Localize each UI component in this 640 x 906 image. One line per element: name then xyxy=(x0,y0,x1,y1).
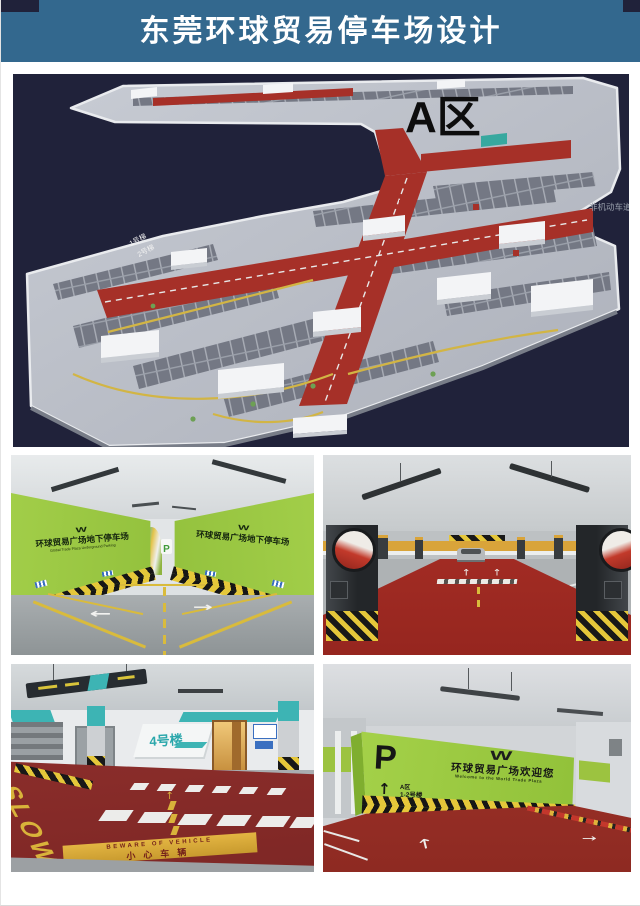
right-floor-arrow: → xyxy=(193,600,213,614)
light-hanger-rod xyxy=(53,664,54,681)
door-leaf xyxy=(232,722,241,770)
siteplan-svg: A区 非机动车道 1号梯 2号梯 xyxy=(13,74,629,447)
sign-glyph xyxy=(65,682,80,687)
column-teal-top xyxy=(87,706,105,726)
right-pillar xyxy=(576,525,628,641)
p-sign-letter: P xyxy=(163,544,170,555)
photo-red-lane: ↑ ↑ xyxy=(323,455,631,655)
stop-line xyxy=(120,584,205,586)
column xyxy=(87,706,105,773)
lane-arrow: ↑ xyxy=(492,567,501,577)
pillar-label-plate xyxy=(604,581,622,599)
photo-ramp-entrance: P W 环球贸易广场地下停车场 Global Trade Plaza Under… xyxy=(11,455,314,655)
lane-dash xyxy=(477,587,480,611)
corridor-column xyxy=(335,731,341,814)
building-4-sign: 4号楼 xyxy=(133,724,212,757)
ceiling-light-bar xyxy=(178,689,223,693)
wall-unit xyxy=(609,739,621,756)
floor-center-dash xyxy=(163,587,166,655)
light-hanger-rod xyxy=(511,672,512,691)
left-floor-arrow: ← xyxy=(90,607,112,622)
light-hanger-rod xyxy=(551,461,552,477)
small-wall-sign xyxy=(253,724,276,738)
light-hanger-rod xyxy=(468,668,469,689)
non-motor-lane-label: 非机动车道 xyxy=(589,202,629,212)
siteplan-render: A区 非机动车道 1号梯 2号梯 xyxy=(13,74,629,447)
big-p-sign: P xyxy=(373,738,398,778)
header-bar: 东莞环球贸易停车场设计 xyxy=(1,0,640,62)
sign-glyph xyxy=(38,685,58,691)
right-green-patch xyxy=(579,760,610,782)
pillar-hazard-base xyxy=(326,611,378,641)
car-windshield xyxy=(461,549,480,554)
w-logo: W xyxy=(490,748,513,764)
convex-mirror xyxy=(332,528,376,572)
pillar-label-plate xyxy=(330,581,348,599)
page: 东莞环球贸易停车场设计 xyxy=(0,0,640,906)
zone-a-label: A区 xyxy=(405,93,481,142)
sign-swoosh xyxy=(175,743,208,749)
lane-arrow: ↑ xyxy=(462,567,471,577)
column xyxy=(278,701,299,776)
sign-glyph xyxy=(118,676,135,681)
small-wall-sign xyxy=(255,741,273,749)
light-hanger-rod xyxy=(400,463,401,481)
left-pillar xyxy=(326,525,378,641)
page-title: 东莞环球贸易停车场设计 xyxy=(1,0,640,62)
pillar-hazard-base xyxy=(576,611,628,641)
overhead-hazard-beam xyxy=(449,535,504,541)
floor-arrow: → xyxy=(582,833,597,845)
distant-car xyxy=(457,548,485,562)
open-wood-door xyxy=(212,720,246,772)
convex-mirror xyxy=(599,528,631,572)
column-teal-top xyxy=(278,701,299,720)
p-sign: P xyxy=(161,539,172,554)
photo-crosswalk: 4号楼 SLOW ↑ xyxy=(11,664,314,872)
storage-rack xyxy=(11,722,63,759)
speed-bump xyxy=(437,579,518,584)
photo-welcome-wall: P ↑ A区 1-2号楼 W 环球贸易广场欢迎您 Welcome to the … xyxy=(323,664,631,872)
